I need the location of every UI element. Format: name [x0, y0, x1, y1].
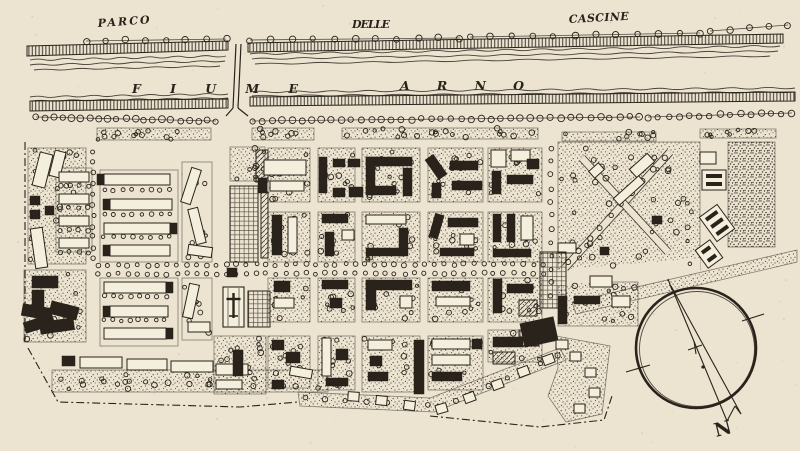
- building: [521, 216, 533, 240]
- building: [127, 359, 167, 370]
- building: [700, 152, 716, 164]
- building: [472, 339, 482, 349]
- building: [702, 170, 726, 190]
- building: [104, 328, 166, 339]
- building: [440, 248, 474, 256]
- building: [403, 168, 412, 196]
- building: [612, 296, 630, 307]
- building: [432, 339, 470, 349]
- building: [59, 172, 89, 182]
- building: [450, 161, 478, 170]
- building: [436, 297, 470, 306]
- building: [493, 214, 501, 242]
- building: [574, 296, 600, 304]
- building: [272, 215, 282, 255]
- building: [233, 350, 243, 376]
- building: [110, 199, 172, 210]
- building: [330, 298, 342, 308]
- church-building: [223, 287, 244, 327]
- building: [322, 338, 331, 376]
- building: [32, 276, 58, 288]
- building: [188, 322, 210, 332]
- building: [348, 159, 360, 167]
- building: [270, 181, 304, 191]
- building: [272, 380, 284, 389]
- building: [342, 230, 354, 240]
- building: [110, 245, 170, 256]
- building: [370, 356, 382, 366]
- building: [333, 188, 345, 197]
- building: [432, 183, 441, 198]
- building: [59, 238, 89, 248]
- building: [349, 187, 363, 197]
- building: [507, 214, 515, 242]
- building: [261, 192, 268, 258]
- building: [491, 150, 506, 167]
- building: [574, 404, 585, 413]
- building: [589, 388, 600, 397]
- building: [104, 223, 170, 234]
- building: [103, 245, 110, 256]
- building: [325, 232, 334, 256]
- building: [492, 171, 501, 194]
- building: [170, 223, 177, 234]
- building: [322, 280, 348, 289]
- building: [600, 247, 609, 255]
- building: [558, 296, 567, 324]
- building: [590, 276, 612, 287]
- building: [166, 328, 173, 339]
- building: [507, 284, 533, 293]
- building: [326, 378, 348, 386]
- building: [432, 281, 470, 291]
- building: [230, 186, 258, 262]
- building: [171, 361, 213, 372]
- building: [110, 306, 168, 317]
- building: [319, 157, 327, 193]
- building: [62, 356, 75, 366]
- building: [366, 248, 404, 256]
- building: [264, 160, 306, 175]
- building: [103, 306, 110, 317]
- city-block: [728, 142, 775, 247]
- building: [368, 340, 392, 350]
- building: [493, 249, 531, 257]
- building: [519, 300, 537, 316]
- building: [80, 357, 122, 368]
- building: [368, 372, 388, 381]
- building: [376, 395, 388, 405]
- building: [414, 340, 424, 394]
- building: [258, 178, 267, 193]
- building: [556, 340, 568, 349]
- building: [272, 340, 284, 350]
- building: [460, 234, 474, 245]
- building: [248, 291, 270, 327]
- building: [333, 159, 345, 167]
- building: [59, 216, 89, 226]
- building: [507, 175, 533, 184]
- building: [286, 352, 300, 363]
- building: [336, 349, 348, 360]
- city-block: [97, 128, 211, 140]
- building: [274, 281, 290, 292]
- city-block: [342, 128, 538, 139]
- building: [400, 296, 412, 308]
- building: [527, 159, 539, 169]
- building: [432, 355, 470, 365]
- building: [59, 194, 89, 204]
- building: [104, 282, 166, 293]
- building: [45, 206, 54, 215]
- building: [166, 282, 173, 293]
- building: [366, 215, 406, 224]
- building: [274, 298, 294, 308]
- building: [585, 368, 596, 377]
- building: [322, 214, 348, 223]
- map-page: PARCO DELLE CASCINE FIUME ARNO N: [0, 0, 800, 451]
- building: [227, 268, 237, 277]
- building: [452, 181, 482, 190]
- building: [448, 218, 478, 227]
- building: [366, 280, 376, 310]
- building: [288, 217, 297, 253]
- building: [216, 380, 242, 389]
- label-delle: DELLE: [351, 18, 394, 31]
- city-plan-map: PARCO DELLE CASCINE FIUME ARNO N: [0, 0, 800, 451]
- building: [30, 196, 40, 205]
- building: [348, 392, 360, 402]
- building: [493, 279, 502, 313]
- building: [432, 372, 462, 381]
- building: [570, 352, 581, 361]
- building: [30, 210, 40, 219]
- building: [104, 174, 170, 185]
- building: [103, 199, 110, 210]
- building: [493, 352, 515, 364]
- building: [652, 216, 662, 224]
- building: [97, 174, 104, 185]
- building: [403, 400, 415, 410]
- building: [366, 186, 396, 195]
